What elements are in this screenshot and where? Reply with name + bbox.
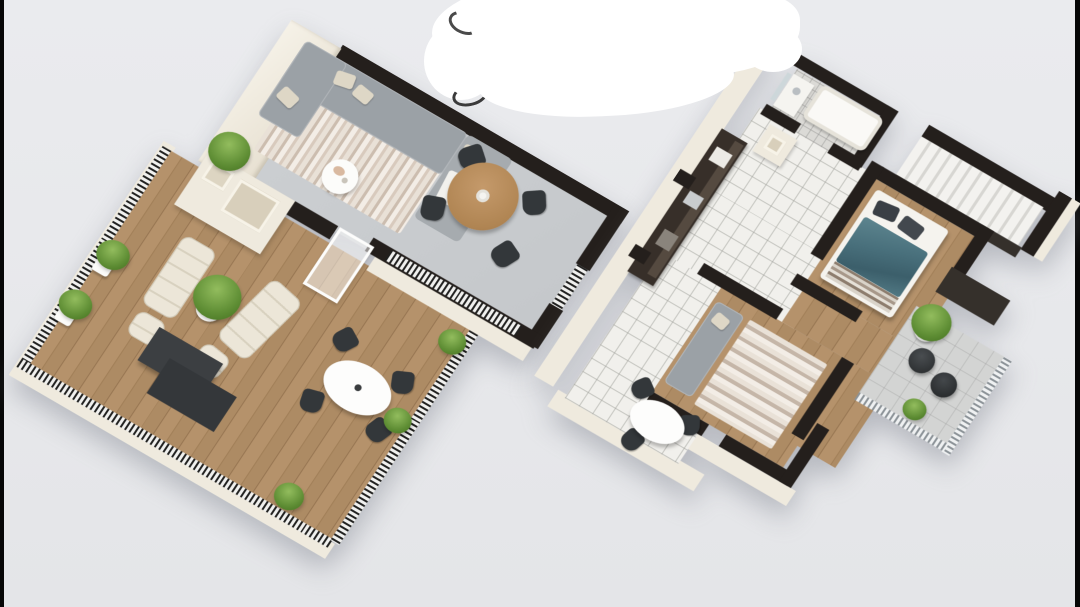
bed-pillow-1 <box>872 200 901 223</box>
chimney-recess <box>763 133 787 156</box>
table-bottle <box>353 383 363 392</box>
dining-chair-2 <box>522 190 547 216</box>
second-room-sofa-pillow <box>710 311 731 331</box>
coffee-table-tray <box>331 164 346 177</box>
scribble-lobe-6 <box>744 26 802 72</box>
coffee-table-cup <box>340 177 348 185</box>
chimney-recess-large <box>220 179 280 234</box>
sink-faucet <box>791 86 802 97</box>
floor-plan-render <box>0 0 1080 607</box>
right-letterbox-bar <box>1075 0 1080 607</box>
pendant-lamp <box>474 187 492 204</box>
left-letterbox-bar <box>0 0 4 607</box>
